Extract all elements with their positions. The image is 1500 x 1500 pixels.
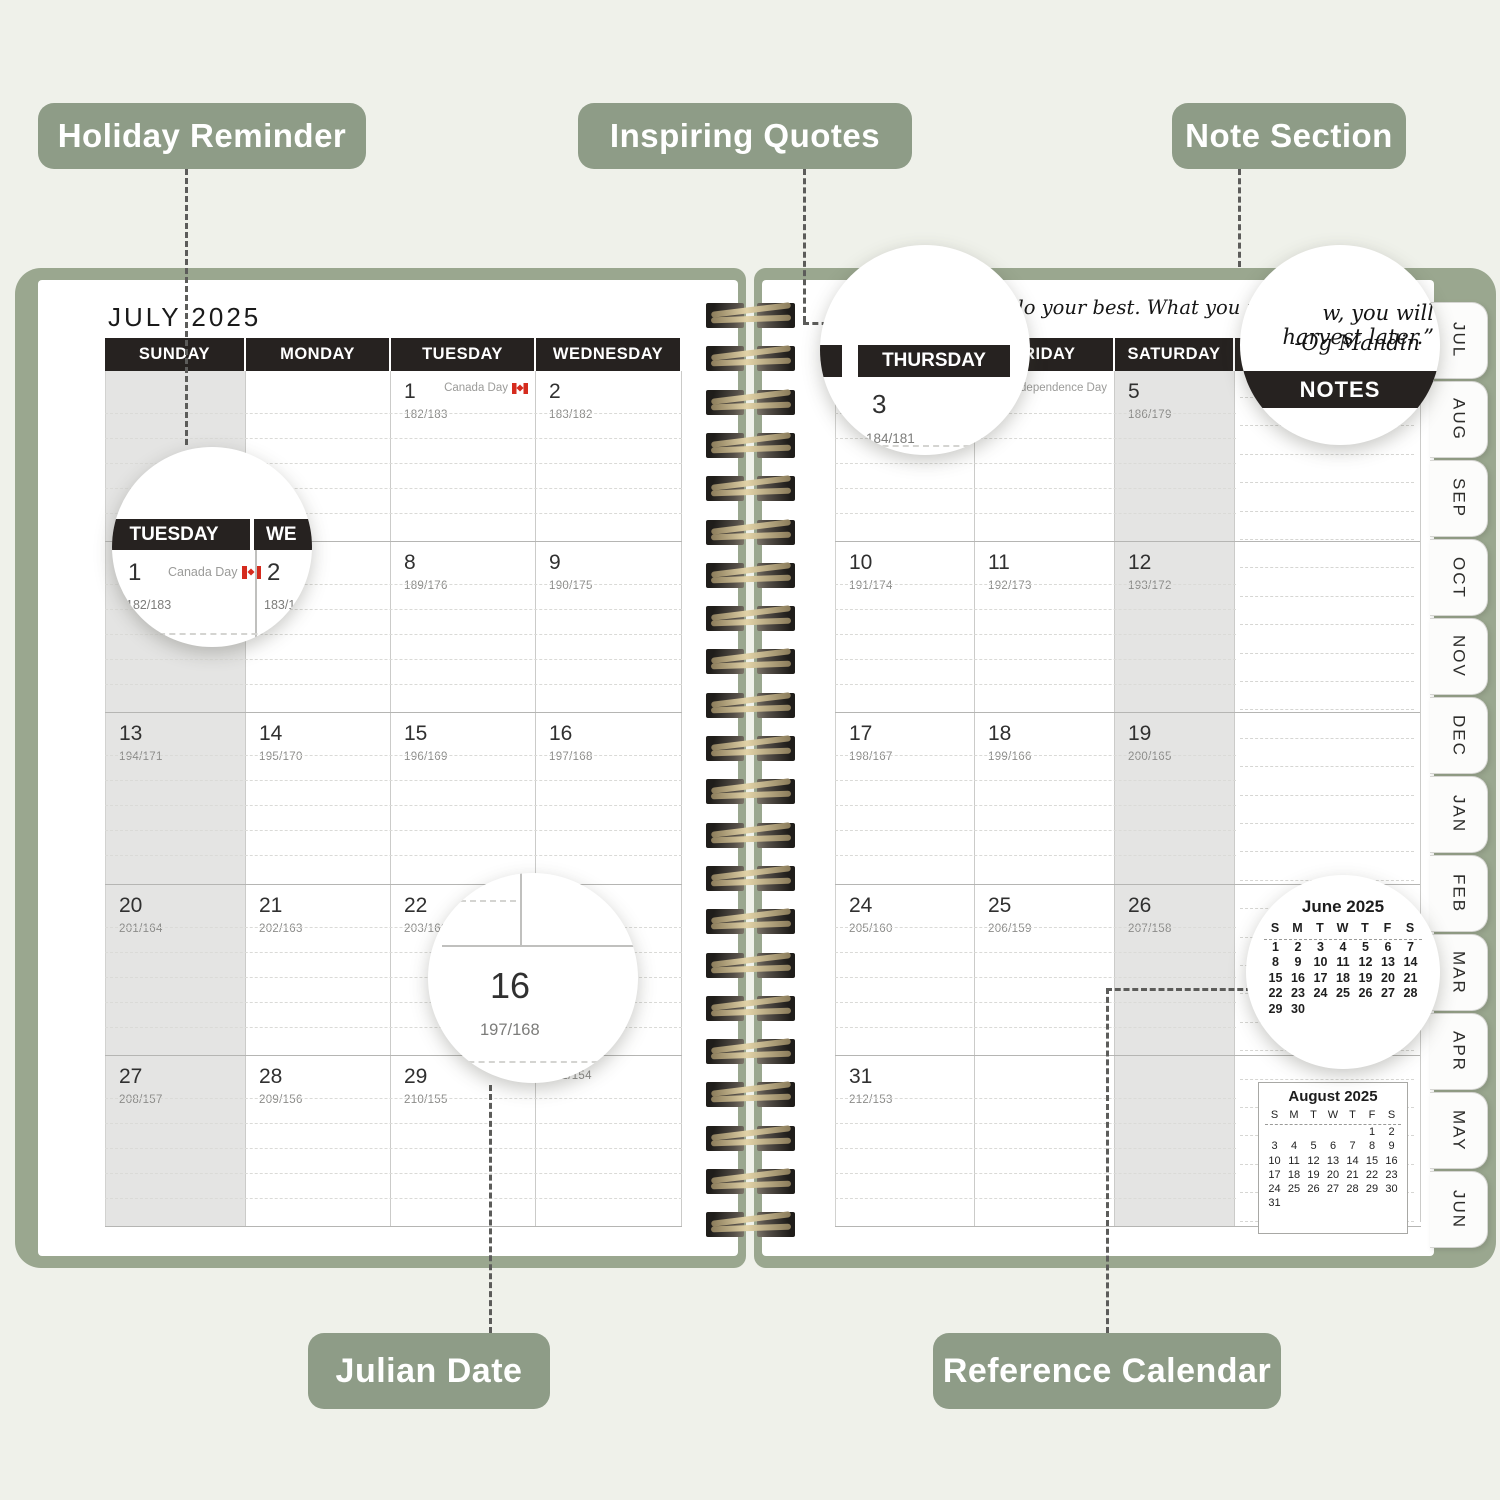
mini-date: 31 bbox=[1265, 1196, 1285, 1210]
mini-date: 4 bbox=[1284, 1139, 1304, 1153]
julian-date-number: 209/156 bbox=[259, 1094, 390, 1106]
calendar-day-cell: 25206/159 bbox=[975, 885, 1115, 1055]
mini-calendar-day-letters: SMTWTFS bbox=[1264, 921, 1422, 940]
mini-date: 28 bbox=[1343, 1182, 1363, 1196]
mini-date: 13 bbox=[1323, 1154, 1343, 1168]
mini-date bbox=[1399, 1002, 1422, 1018]
day-header: MONDAY bbox=[246, 338, 389, 371]
inset-holiday-reminder: TUESDAY WE 1 Canada Day 182/183 2 183/18 bbox=[112, 447, 312, 647]
mini-date: 26 bbox=[1304, 1182, 1324, 1196]
holiday-name: Independence Day bbox=[1010, 382, 1107, 394]
mini-calendar-week: 1234567 bbox=[1256, 940, 1430, 956]
connector-note bbox=[1238, 169, 1241, 267]
day-letter: S bbox=[1265, 1108, 1285, 1122]
mini-date: 6 bbox=[1377, 940, 1400, 956]
notes-ruled-line bbox=[1240, 454, 1414, 455]
mini-date: 2 bbox=[1382, 1125, 1402, 1139]
date-number: 26 bbox=[1128, 894, 1234, 918]
mini-calendar-week: 15161718192021 bbox=[1256, 971, 1430, 987]
calendar-day-cell: 10191/174 bbox=[835, 542, 975, 712]
julian-date-number: 207/158 bbox=[1128, 923, 1234, 935]
callout-reference-calendar: Reference Calendar bbox=[933, 1333, 1281, 1409]
day-letter: T bbox=[1354, 921, 1377, 937]
holiday-label: Canada Day bbox=[444, 382, 528, 394]
inset-day2-number: 2 bbox=[267, 559, 280, 587]
guide-line bbox=[458, 1061, 608, 1063]
planner-page-left: JULY 2025 SUNDAYMONDAYTUESDAYWEDNESDAY11… bbox=[38, 280, 738, 1256]
mini-date: 8 bbox=[1264, 955, 1287, 971]
connector-reference-vertical bbox=[1106, 988, 1109, 1333]
calendar-day-cell: 21202/163 bbox=[246, 885, 391, 1055]
mini-date bbox=[1332, 1002, 1355, 1018]
notes-ruled-line bbox=[1240, 851, 1414, 852]
notes-ruled-line bbox=[1240, 482, 1414, 483]
mini-date: 12 bbox=[1354, 955, 1377, 971]
connector-julian bbox=[489, 1085, 492, 1333]
mini-date: 15 bbox=[1362, 1154, 1382, 1168]
julian-date-number: 200/165 bbox=[1128, 751, 1234, 763]
mini-date: 7 bbox=[1399, 940, 1422, 956]
mini-date: 1 bbox=[1264, 940, 1287, 956]
date-number: 10 bbox=[849, 551, 974, 575]
inset-tuesday-header: TUESDAY bbox=[112, 519, 250, 550]
calendar-day-cell: 2183/182 bbox=[536, 371, 682, 541]
julian-date-number: 202/163 bbox=[259, 923, 390, 935]
mini-date bbox=[1309, 1002, 1332, 1018]
mini-date: 20 bbox=[1323, 1168, 1343, 1182]
mini-date: 20 bbox=[1377, 971, 1400, 987]
date-number: 31 bbox=[849, 1065, 974, 1089]
mini-calendar-week: 31 bbox=[1259, 1196, 1407, 1210]
date-number: 27 bbox=[119, 1065, 245, 1089]
inset-thursday: THURSDAY 3 184/181 bbox=[820, 245, 1030, 455]
mini-calendar-week: 891011121314 bbox=[1256, 955, 1430, 971]
mini-date: 3 bbox=[1309, 940, 1332, 956]
tab-label: SEP bbox=[1449, 478, 1469, 518]
calendar-day-cell: 211/154 bbox=[536, 1056, 682, 1226]
mini-date: 5 bbox=[1354, 940, 1377, 956]
inset-julian-number: 197/168 bbox=[480, 1021, 540, 1040]
julian-date-number: 196/169 bbox=[404, 751, 535, 763]
mini-calendar-title: June 2025 bbox=[1256, 897, 1430, 917]
julian-date-number: 201/164 bbox=[119, 923, 245, 935]
month-tab-nov: NOV bbox=[1430, 618, 1488, 695]
callout-holiday-reminder: Holiday Reminder bbox=[38, 103, 366, 169]
calendar-day-cell: 28209/156 bbox=[246, 1056, 391, 1226]
date-number: 12 bbox=[1128, 551, 1234, 575]
day-letter: F bbox=[1362, 1108, 1382, 1122]
inset-wednesday-header-partial: WE bbox=[254, 519, 312, 550]
holiday-name: Canada Day bbox=[444, 382, 508, 394]
mini-date: 11 bbox=[1284, 1154, 1304, 1168]
notes-ruled-line bbox=[1240, 596, 1414, 597]
julian-date-number: 210/155 bbox=[404, 1094, 535, 1106]
mini-calendar-week: 12 bbox=[1259, 1125, 1407, 1139]
inset-julian-number: 182/183 bbox=[126, 598, 171, 612]
mini-date: 21 bbox=[1399, 971, 1422, 987]
day-letter: F bbox=[1377, 921, 1400, 937]
mini-date: 14 bbox=[1343, 1154, 1363, 1168]
mini-date: 21 bbox=[1343, 1168, 1363, 1182]
month-tab-dec: DEC bbox=[1430, 697, 1488, 774]
date-number: 19 bbox=[1128, 722, 1234, 746]
tab-label: AUG bbox=[1449, 398, 1469, 441]
guide-line bbox=[430, 900, 516, 902]
notes-ruled-line bbox=[1240, 567, 1414, 568]
calendar-day-cell: 5186/179 bbox=[1115, 371, 1235, 541]
date-number: 24 bbox=[849, 894, 974, 918]
mini-date: 19 bbox=[1354, 971, 1377, 987]
mini-calendar-week: 10111213141516 bbox=[1259, 1154, 1407, 1168]
julian-date-number: 208/157 bbox=[119, 1094, 245, 1106]
mini-date bbox=[1284, 1125, 1304, 1139]
calendar-day-cell bbox=[1115, 1056, 1235, 1226]
mini-calendar-week: 3456789 bbox=[1259, 1139, 1407, 1153]
inset-day-number: 16 bbox=[490, 965, 530, 1007]
mini-date: 22 bbox=[1264, 986, 1287, 1002]
date-number: 16 bbox=[549, 722, 681, 746]
julian-date-number: 186/179 bbox=[1128, 409, 1234, 421]
notes-ruled-line bbox=[1240, 766, 1414, 767]
date-number: 18 bbox=[988, 722, 1114, 746]
mini-date: 5 bbox=[1304, 1139, 1324, 1153]
cell-border-horizontal bbox=[442, 945, 638, 947]
mini-calendar-day-letters: SMTWTFS bbox=[1265, 1108, 1401, 1125]
holiday-label: Independence Day bbox=[1010, 382, 1107, 394]
notes-ruled-line bbox=[1240, 653, 1414, 654]
mini-date: 24 bbox=[1309, 986, 1332, 1002]
inset-julian-date: 16 197/168 bbox=[428, 873, 638, 1083]
calendar-week-row: 13194/17114195/17015196/16916197/168 bbox=[105, 712, 682, 883]
calendar-day-cell: 14195/170 bbox=[246, 713, 391, 883]
mini-date: 24 bbox=[1265, 1182, 1285, 1196]
notes-ruled-line bbox=[1240, 539, 1414, 540]
inset-note-section: w, you will harvest later.” -Og Mandin N… bbox=[1240, 245, 1440, 445]
mini-date: 10 bbox=[1265, 1154, 1285, 1168]
month-tab-apr: APR bbox=[1430, 1013, 1488, 1090]
mini-date: 11 bbox=[1332, 955, 1355, 971]
mini-date bbox=[1377, 1002, 1400, 1018]
inset-thursday-header: THURSDAY bbox=[858, 345, 1010, 377]
connector-holiday bbox=[185, 169, 188, 445]
notes-ruled-line bbox=[1240, 624, 1414, 625]
tab-label: JAN bbox=[1449, 795, 1469, 833]
holiday-name: Canada Day bbox=[168, 565, 238, 579]
mini-date: 14 bbox=[1399, 955, 1422, 971]
day-letter: M bbox=[1284, 1108, 1304, 1122]
day-header: WEDNESDAY bbox=[536, 338, 680, 371]
mini-date: 2 bbox=[1287, 940, 1310, 956]
julian-date-number: 182/183 bbox=[404, 409, 535, 421]
tab-label: JUN bbox=[1449, 1190, 1469, 1229]
calendar-day-cell bbox=[975, 1056, 1115, 1226]
calendar-day-cell: 17198/167 bbox=[835, 713, 975, 883]
date-number: 20 bbox=[119, 894, 245, 918]
date-number: 9 bbox=[549, 551, 681, 575]
mini-calendar-week: 17181920212223 bbox=[1259, 1168, 1407, 1182]
june-mini-calendar: June 2025SMTWTFS123456789101112131415161… bbox=[1256, 897, 1430, 1017]
day-letter: M bbox=[1287, 921, 1310, 937]
day-letter: S bbox=[1264, 921, 1287, 937]
julian-date-number: 192/173 bbox=[988, 580, 1114, 592]
inset-quote-attribution: -Og Mandin bbox=[1240, 331, 1420, 355]
inset-holiday-label: Canada Day bbox=[168, 565, 261, 579]
mini-date: 22 bbox=[1362, 1168, 1382, 1182]
tab-label: NOV bbox=[1449, 635, 1469, 678]
mini-date bbox=[1343, 1125, 1363, 1139]
mini-date bbox=[1284, 1196, 1304, 1210]
mini-date: 29 bbox=[1362, 1182, 1382, 1196]
month-tab-sep: SEP bbox=[1430, 460, 1488, 537]
mini-date bbox=[1323, 1125, 1343, 1139]
date-number: 17 bbox=[849, 722, 974, 746]
mini-date: 10 bbox=[1309, 955, 1332, 971]
calendar-day-cell: 26207/158 bbox=[1115, 885, 1235, 1055]
tab-label: OCT bbox=[1449, 557, 1469, 599]
month-tab-oct: OCT bbox=[1430, 539, 1488, 616]
day-header-row: SUNDAYMONDAYTUESDAYWEDNESDAY bbox=[105, 338, 682, 371]
connector-quotes-vertical bbox=[803, 169, 806, 322]
calendar-day-cell: 9190/175 bbox=[536, 542, 682, 712]
cell-divider bbox=[255, 550, 257, 646]
date-number: 14 bbox=[259, 722, 390, 746]
julian-date-number: 199/166 bbox=[988, 751, 1114, 763]
mini-date: 28 bbox=[1399, 986, 1422, 1002]
day-letter: W bbox=[1332, 921, 1355, 937]
day-letter: S bbox=[1399, 921, 1422, 937]
calendar-day-cell: 1182/183Canada Day bbox=[391, 371, 536, 541]
mini-date bbox=[1343, 1196, 1363, 1210]
tab-label: MAY bbox=[1449, 1110, 1469, 1152]
tab-label: JUL bbox=[1449, 322, 1469, 358]
inset-day-number: 3 bbox=[872, 389, 886, 420]
julian-date-number: 205/160 bbox=[849, 923, 974, 935]
mini-date: 16 bbox=[1382, 1154, 1402, 1168]
notes-ruled-line bbox=[1240, 709, 1414, 710]
mini-date: 18 bbox=[1284, 1168, 1304, 1182]
canada-flag-icon bbox=[512, 383, 528, 394]
mini-date: 9 bbox=[1382, 1139, 1402, 1153]
date-number: 8 bbox=[404, 551, 535, 575]
calendar-day-cell: 18199/166 bbox=[975, 713, 1115, 883]
calendar-day-cell: 31212/153 bbox=[835, 1056, 975, 1226]
julian-date-number: 189/176 bbox=[404, 580, 535, 592]
mini-date: 30 bbox=[1382, 1182, 1402, 1196]
mini-date bbox=[1304, 1125, 1324, 1139]
day-letter: T bbox=[1309, 921, 1332, 937]
day-letter: S bbox=[1382, 1108, 1402, 1122]
mini-date: 12 bbox=[1304, 1154, 1324, 1168]
mini-date bbox=[1382, 1196, 1402, 1210]
calendar-day-cell: 13194/171 bbox=[105, 713, 246, 883]
mini-date: 29 bbox=[1264, 1002, 1287, 1018]
notes-ruled-line bbox=[1240, 738, 1414, 739]
date-number: 15 bbox=[404, 722, 535, 746]
canada-flag-icon bbox=[242, 566, 261, 579]
inset-notes-header: NOTES bbox=[1240, 371, 1440, 408]
mini-date: 30 bbox=[1287, 1002, 1310, 1018]
mini-date: 15 bbox=[1264, 971, 1287, 987]
mini-date: 27 bbox=[1323, 1182, 1343, 1196]
reference-calendar-august: August 2025SMTWTFS1234567891011121314151… bbox=[1258, 1082, 1408, 1234]
mini-date: 25 bbox=[1284, 1182, 1304, 1196]
date-number: 28 bbox=[259, 1065, 390, 1089]
mini-date: 23 bbox=[1287, 986, 1310, 1002]
date-number: 13 bbox=[119, 722, 245, 746]
tab-label: MAR bbox=[1449, 951, 1469, 995]
mini-date: 3 bbox=[1265, 1139, 1285, 1153]
date-number: 5 bbox=[1128, 380, 1234, 404]
mini-date bbox=[1362, 1196, 1382, 1210]
tab-label: FEB bbox=[1449, 874, 1469, 913]
date-number: 2 bbox=[549, 380, 681, 404]
day-letter: W bbox=[1323, 1108, 1343, 1122]
month-tab-jun: JUN bbox=[1430, 1171, 1488, 1248]
mini-calendar-week: 22232425262728 bbox=[1256, 986, 1430, 1002]
day-header: TUESDAY bbox=[391, 338, 534, 371]
mini-date: 26 bbox=[1354, 986, 1377, 1002]
guide-line bbox=[118, 633, 278, 635]
mini-calendar-week: 2930 bbox=[1256, 1002, 1430, 1018]
calendar-day-cell: 27208/157 bbox=[105, 1056, 246, 1226]
julian-date-number: 191/174 bbox=[849, 580, 974, 592]
header-bar-sliver bbox=[820, 345, 842, 377]
julian-date-number: 190/175 bbox=[549, 580, 681, 592]
mini-date: 6 bbox=[1323, 1139, 1343, 1153]
day-header: SATURDAY bbox=[1115, 338, 1233, 371]
inset-reference-calendar-june: June 2025SMTWTFS123456789101112131415161… bbox=[1246, 875, 1440, 1069]
mini-date bbox=[1265, 1125, 1285, 1139]
month-tab-feb: FEB bbox=[1430, 855, 1488, 932]
mini-date: 4 bbox=[1332, 940, 1355, 956]
tab-label: DEC bbox=[1449, 715, 1469, 757]
inset-day-number: 1 bbox=[128, 559, 141, 587]
mini-date: 17 bbox=[1309, 971, 1332, 987]
date-number: 25 bbox=[988, 894, 1114, 918]
julian-date-number: 194/171 bbox=[119, 751, 245, 763]
mini-date: 19 bbox=[1304, 1168, 1324, 1182]
guide-line bbox=[842, 445, 1010, 447]
julian-date-number: 195/170 bbox=[259, 751, 390, 763]
calendar-day-cell: 19200/165 bbox=[1115, 713, 1235, 883]
callout-julian-date: Julian Date bbox=[308, 1333, 550, 1409]
julian-date-number: 193/172 bbox=[1128, 580, 1234, 592]
mini-date: 1 bbox=[1362, 1125, 1382, 1139]
julian-date-number: 206/159 bbox=[988, 923, 1114, 935]
notes-ruled-line bbox=[1240, 823, 1414, 824]
mini-date: 18 bbox=[1332, 971, 1355, 987]
mini-date: 23 bbox=[1382, 1168, 1402, 1182]
mini-date: 27 bbox=[1377, 986, 1400, 1002]
mini-date: 9 bbox=[1287, 955, 1310, 971]
date-number: 11 bbox=[988, 551, 1114, 575]
connector-reference-horizontal bbox=[1106, 988, 1252, 991]
julian-date-number: 183/182 bbox=[549, 409, 681, 421]
month-tab-may: MAY bbox=[1430, 1092, 1488, 1169]
cell-border-vertical bbox=[520, 873, 522, 945]
mini-date: 8 bbox=[1362, 1139, 1382, 1153]
inset-julian2-number: 183/18 bbox=[264, 598, 302, 612]
calendar-day-cell: 12193/172 bbox=[1115, 542, 1235, 712]
calendar-week-row: 27208/15728209/15629210/155211/154 bbox=[105, 1055, 682, 1226]
date-number: 21 bbox=[259, 894, 390, 918]
julian-date-number: 212/153 bbox=[849, 1094, 974, 1106]
calendar-day-cell: 8189/176 bbox=[391, 542, 536, 712]
mini-date bbox=[1323, 1196, 1343, 1210]
mini-date bbox=[1304, 1196, 1324, 1210]
mini-date: 13 bbox=[1377, 955, 1400, 971]
notes-ruled-line bbox=[1240, 511, 1414, 512]
mini-calendar-title: August 2025 bbox=[1259, 1088, 1407, 1105]
mini-date bbox=[1354, 1002, 1377, 1018]
callout-note-section: Note Section bbox=[1172, 103, 1406, 169]
calendar-day-cell: 15196/169 bbox=[391, 713, 536, 883]
mini-date: 25 bbox=[1332, 986, 1355, 1002]
month-tab-jan: JAN bbox=[1430, 776, 1488, 853]
julian-date-number: 197/168 bbox=[549, 751, 681, 763]
notes-ruled-line bbox=[1240, 1079, 1414, 1080]
mini-date: 7 bbox=[1343, 1139, 1363, 1153]
day-letter: T bbox=[1343, 1108, 1363, 1122]
mini-date: 17 bbox=[1265, 1168, 1285, 1182]
day-letter: T bbox=[1304, 1108, 1324, 1122]
notes-ruled-line bbox=[1240, 681, 1414, 682]
notes-ruled-line bbox=[1240, 795, 1414, 796]
calendar-day-cell: 11192/173 bbox=[975, 542, 1115, 712]
mini-date: 16 bbox=[1287, 971, 1310, 987]
callout-inspiring-quotes: Inspiring Quotes bbox=[578, 103, 912, 169]
tab-label: APR bbox=[1449, 1031, 1469, 1072]
calendar-day-cell: 20201/164 bbox=[105, 885, 246, 1055]
julian-date-number: 198/167 bbox=[849, 751, 974, 763]
calendar-day-cell: 24205/160 bbox=[835, 885, 975, 1055]
calendar-day-cell: 16197/168 bbox=[536, 713, 682, 883]
mini-calendar-week: 24252627282930 bbox=[1259, 1182, 1407, 1196]
day-header: SUNDAY bbox=[105, 338, 244, 371]
inset-julian-number: 184/181 bbox=[866, 431, 915, 446]
